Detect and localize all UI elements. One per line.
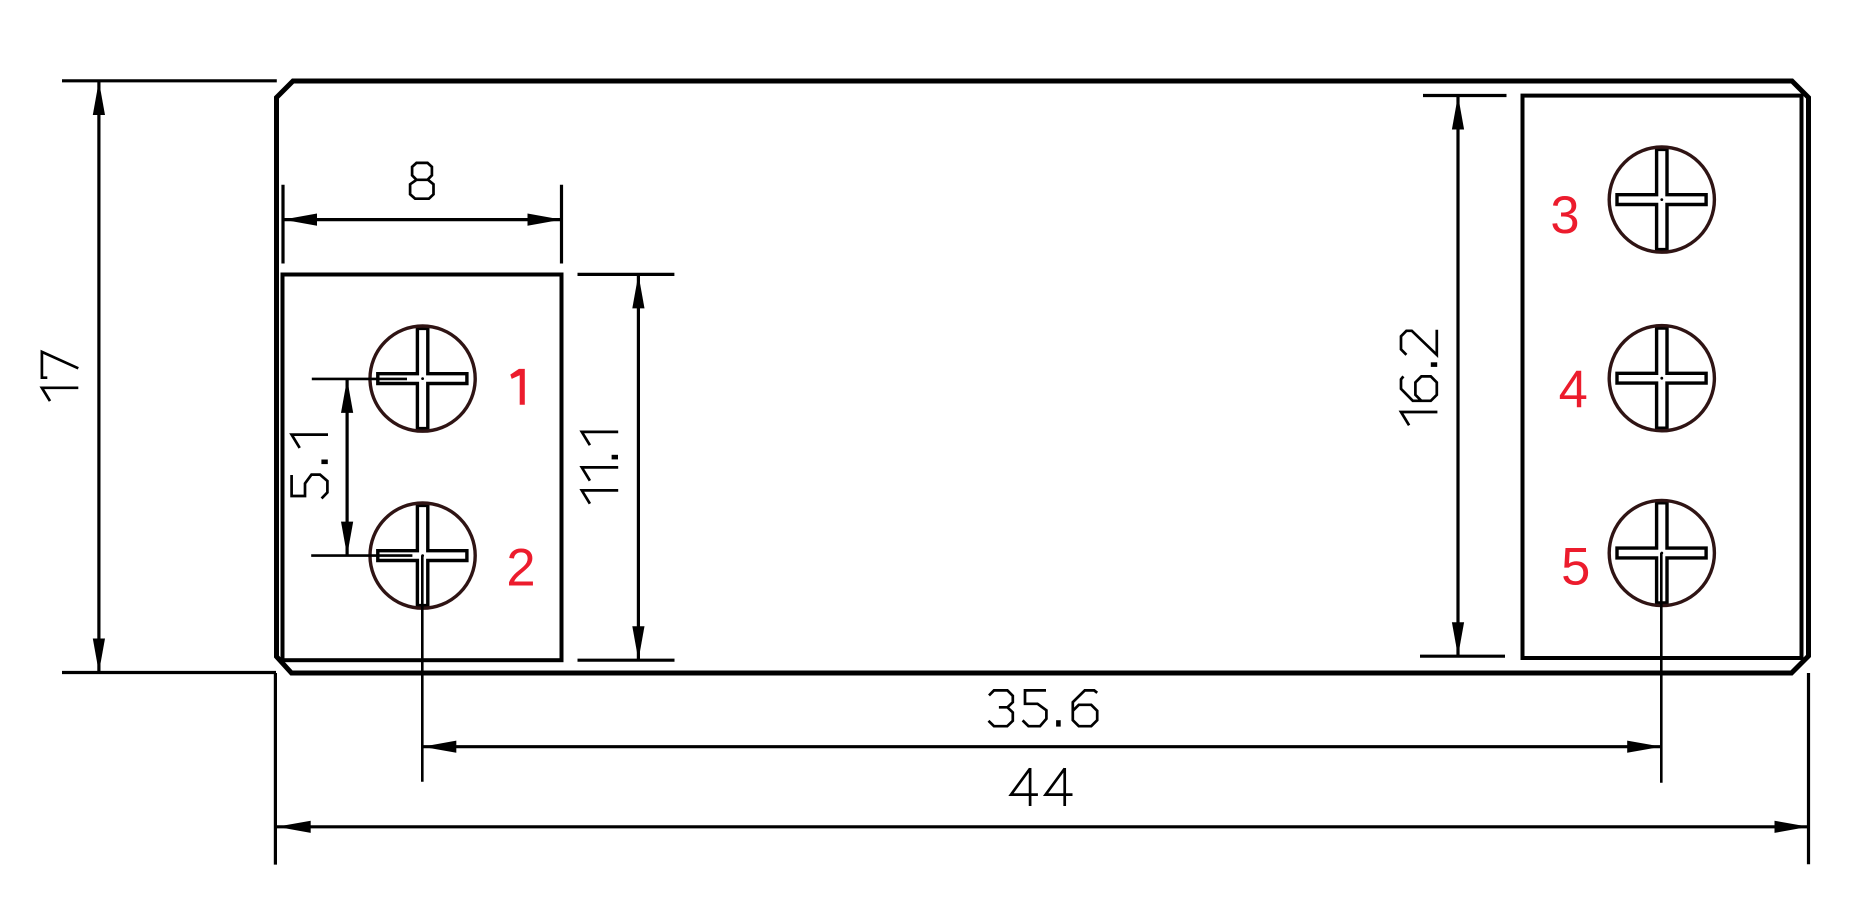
svg-text:4: 4 <box>1559 360 1588 419</box>
svg-text:3: 3 <box>1550 186 1579 245</box>
svg-text:2: 2 <box>506 539 535 598</box>
svg-text:5: 5 <box>1561 537 1590 596</box>
